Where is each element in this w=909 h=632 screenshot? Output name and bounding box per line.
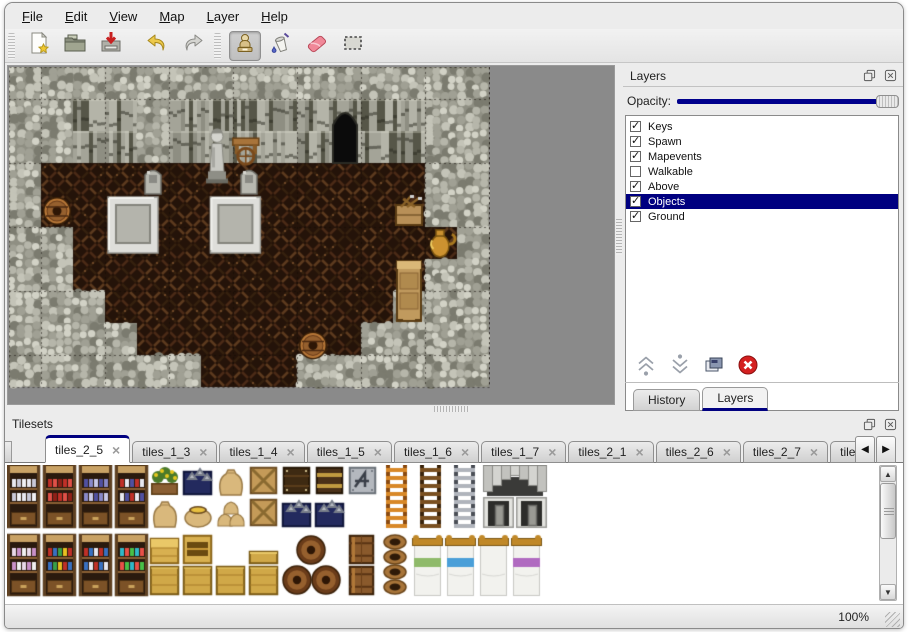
tileset-tab-label: tiles_2_7 — [753, 445, 801, 459]
layer-row-mapevents[interactable]: ✓Mapevents — [626, 149, 898, 164]
menu-view[interactable]: View — [98, 6, 148, 27]
tileset-tab-label: tiles_2_1 — [578, 445, 626, 459]
close-tab-icon[interactable]: × — [112, 445, 120, 455]
delete-layer-button[interactable] — [735, 355, 761, 381]
tileset-tab-tiles_2_1[interactable]: tiles_2_1× — [568, 441, 653, 463]
arrow-down-icon: ▼ — [884, 588, 892, 597]
opacity-row: Opacity: — [623, 91, 903, 111]
layer-visibility-checkbox[interactable]: ✓ — [630, 181, 641, 192]
chevron-double-down-icon — [668, 353, 692, 382]
tileset-tab-label: tiles_1_7 — [491, 445, 539, 459]
thumb-grip — [884, 508, 894, 516]
move-layer-up-button[interactable] — [633, 355, 659, 381]
tileset-tab-tiles_1_6[interactable]: tiles_1_6× — [394, 441, 479, 463]
close-tab-icon[interactable]: × — [723, 447, 731, 457]
tileset-tab-tiles_2_7[interactable]: tiles_2_7× — [743, 441, 828, 463]
save-icon — [99, 31, 123, 60]
layers-panel-titlebar: Layers — [623, 65, 903, 87]
layer-visibility-checkbox[interactable]: ✓ — [630, 151, 641, 162]
scroll-tabs-right-button[interactable]: ▶ — [876, 436, 896, 463]
menu-file[interactable]: File — [11, 6, 54, 27]
tileset-tab-tiles[interactable]: tiles_× — [830, 441, 855, 463]
layer-visibility-checkbox[interactable]: ✓ — [630, 196, 641, 207]
layer-name: Spawn — [641, 136, 682, 148]
opacity-slider-fill — [677, 99, 899, 104]
redo-arrow-icon — [181, 31, 205, 60]
select-tool-button[interactable] — [337, 31, 369, 61]
scroll-tabs-left-button[interactable]: ◀ — [855, 436, 875, 463]
paint-bucket-icon — [269, 31, 293, 60]
tileset-tab-tiles_2_6[interactable]: tiles_2_6× — [656, 441, 741, 463]
tileset-tab-label: tiles_1_4 — [229, 445, 277, 459]
vertical-splitter[interactable] — [615, 65, 623, 405]
stamp-tool-button[interactable] — [229, 31, 261, 61]
scroll-down-button[interactable]: ▼ — [880, 584, 896, 600]
tileset-tab-label: tiles_2_6 — [666, 445, 714, 459]
close-panel-button[interactable] — [882, 416, 898, 432]
layer-visibility-checkbox[interactable]: ✓ — [630, 211, 641, 222]
tab-overflow-sliver[interactable] — [5, 441, 12, 462]
opacity-label: Opacity: — [623, 94, 677, 108]
layer-row-walkable[interactable]: Walkable — [626, 164, 898, 179]
opacity-slider[interactable] — [677, 93, 899, 109]
dock-tab-layers[interactable]: Layers — [702, 387, 768, 411]
float-panel-button[interactable] — [861, 68, 877, 84]
menu-edit[interactable]: Edit — [54, 6, 98, 27]
app-window: FileEditViewMapLayerHelp Layers Opacity:… — [4, 2, 904, 629]
map-canvas[interactable] — [9, 67, 490, 389]
tileset-tab-bar: tiles_2_5×tiles_1_3×tiles_1_4×tiles_1_5×… — [5, 435, 903, 463]
tileset-tab-label: tiles_ — [840, 445, 855, 459]
resize-grip[interactable] — [885, 612, 900, 627]
map-viewport[interactable] — [7, 65, 615, 405]
opacity-slider-handle[interactable] — [876, 95, 899, 108]
stamp-icon — [233, 31, 257, 60]
splitter-grip[interactable] — [616, 219, 622, 255]
close-tab-icon[interactable]: × — [287, 447, 295, 457]
layer-visibility-checkbox[interactable] — [630, 166, 641, 177]
scroll-up-button[interactable]: ▲ — [880, 466, 896, 482]
layer-name: Objects — [641, 196, 685, 208]
tilesets-panel-titlebar: Tilesets — [5, 413, 903, 435]
tileset-tab-tiles_1_5[interactable]: tiles_1_5× — [307, 441, 392, 463]
duplicate-layer-button[interactable] — [701, 355, 727, 381]
layer-visibility-checkbox[interactable]: ✓ — [630, 136, 641, 147]
close-tab-icon[interactable]: × — [635, 447, 643, 457]
selection-icon — [341, 31, 365, 60]
tileset-tab-label: tiles_1_3 — [142, 445, 190, 459]
tileset-tab-tiles_1_7[interactable]: tiles_1_7× — [481, 441, 566, 463]
close-tab-icon[interactable]: × — [199, 447, 207, 457]
open-button[interactable] — [59, 31, 91, 61]
layer-row-objects[interactable]: ✓Objects — [626, 194, 898, 209]
menu-layer[interactable]: Layer — [196, 6, 251, 27]
close-panel-button[interactable] — [882, 68, 898, 84]
layer-name: Walkable — [641, 166, 693, 178]
tileset-tab-label: tiles_2_5 — [55, 443, 103, 457]
layer-name: Mapevents — [641, 151, 702, 163]
close-tab-icon[interactable]: × — [810, 447, 818, 457]
status-bar: 100% — [5, 604, 903, 629]
new-file-icon — [27, 31, 51, 60]
layers-panel-title: Layers — [623, 69, 861, 83]
close-tab-icon[interactable]: × — [548, 447, 556, 457]
eraser-tool-button[interactable] — [301, 31, 333, 61]
dock-tab-history[interactable]: History — [633, 389, 700, 411]
redo-button[interactable] — [177, 31, 209, 61]
tileset-scrollbar[interactable]: ▲ ▼ — [879, 465, 897, 601]
layer-visibility-checkbox[interactable]: ✓ — [630, 121, 641, 132]
tileset-tab-tiles_1_3[interactable]: tiles_1_3× — [132, 441, 217, 463]
layer-name: Ground — [641, 211, 685, 223]
float-panel-button[interactable] — [861, 416, 877, 432]
new-file-button[interactable] — [23, 31, 55, 61]
scroll-left-icon: ◀ — [861, 444, 869, 455]
layer-name: Keys — [641, 121, 672, 133]
duplicate-icon — [702, 353, 726, 382]
delete-icon — [736, 353, 760, 382]
save-button[interactable] — [95, 31, 127, 61]
zoom-level: 100% — [838, 610, 869, 624]
menu-help[interactable]: Help — [250, 6, 299, 27]
dock-tab-bar: HistoryLayers — [633, 387, 770, 411]
layer-row-ground[interactable]: ✓Ground — [626, 209, 898, 224]
eraser-icon — [305, 31, 329, 60]
tileset-canvas[interactable] — [7, 465, 875, 602]
undo-arrow-icon — [145, 31, 169, 60]
layers-dock: Layers Opacity: ✓Keys✓Spawn✓MapeventsWal… — [623, 65, 903, 411]
tileset-tab-label: tiles_1_6 — [404, 445, 452, 459]
open-folder-icon — [63, 31, 87, 60]
toolbar-drag-handle[interactable] — [214, 33, 221, 59]
toolbar — [5, 29, 903, 63]
menu-map[interactable]: Map — [148, 6, 195, 27]
tileset-tab-tiles_2_5[interactable]: tiles_2_5× — [45, 435, 130, 463]
toolbar-drag-handle[interactable] — [8, 33, 15, 59]
tilesets-panel: Tilesets tiles_2_5×tiles_1_3×tiles_1_4×t… — [5, 413, 903, 604]
tileset-tab-tiles_1_4[interactable]: tiles_1_4× — [219, 441, 304, 463]
close-tab-icon[interactable]: × — [461, 447, 469, 457]
tileset-view[interactable]: ▲ ▼ — [5, 463, 903, 604]
menu-bar: FileEditViewMapLayerHelp — [5, 3, 903, 29]
close-tab-icon[interactable]: × — [374, 447, 382, 457]
move-layer-down-button[interactable] — [667, 355, 693, 381]
layer-name: Above — [641, 181, 679, 193]
scroll-right-icon: ▶ — [882, 444, 890, 455]
arrow-up-icon: ▲ — [884, 470, 892, 479]
tileset-tab-label: tiles_1_5 — [317, 445, 365, 459]
layer-row-above[interactable]: ✓Above — [626, 179, 898, 194]
scrollbar-thumb[interactable] — [880, 483, 896, 539]
undo-button[interactable] — [141, 31, 173, 61]
layer-row-spawn[interactable]: ✓Spawn — [626, 134, 898, 149]
layer-row-keys[interactable]: ✓Keys — [626, 119, 898, 134]
fill-tool-button[interactable] — [265, 31, 297, 61]
splitter-grip[interactable] — [434, 406, 470, 412]
tileset-tabs: tiles_2_5×tiles_1_3×tiles_1_4×tiles_1_5×… — [45, 434, 855, 463]
chevron-double-up-icon — [634, 353, 658, 382]
layer-action-buttons — [625, 353, 899, 383]
tilesets-panel-title: Tilesets — [5, 417, 861, 431]
